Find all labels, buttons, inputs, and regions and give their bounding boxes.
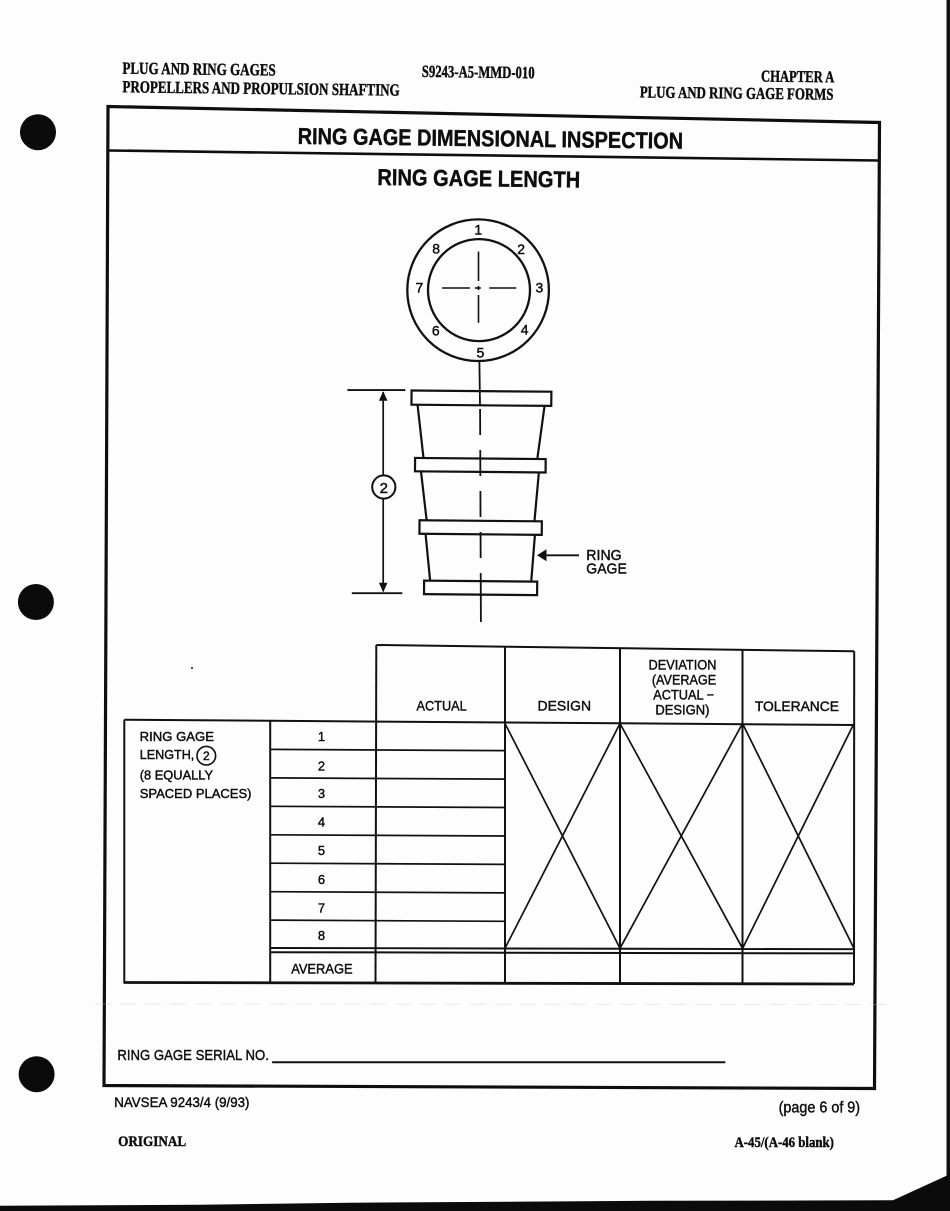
svg-text:TOLERANCE: TOLERANCE [755, 699, 839, 714]
svg-text:AVERAGE: AVERAGE [291, 962, 352, 977]
svg-text:GAGE: GAGE [586, 562, 627, 578]
svg-text:5: 5 [477, 344, 485, 360]
svg-text:RING GAGE DIMENSIONAL INSPECTI: RING GAGE DIMENSIONAL INSPECTION [298, 123, 684, 154]
svg-text:NAVSEA 9243/4 (9/93): NAVSEA 9243/4 (9/93) [114, 1094, 249, 1110]
svg-text:6: 6 [432, 323, 440, 339]
svg-text:DESIGN): DESIGN) [655, 703, 709, 718]
svg-text:7: 7 [318, 901, 325, 916]
svg-text:2: 2 [203, 749, 210, 763]
svg-text:ACTUAL: ACTUAL [417, 698, 467, 713]
svg-text:2: 2 [318, 759, 325, 774]
svg-text:LENGTH,: LENGTH, [140, 747, 195, 762]
svg-text:ACTUAL −: ACTUAL − [653, 688, 714, 703]
svg-text:A-45/(A-46 blank): A-45/(A-46 blank) [735, 1135, 834, 1151]
svg-text:DEVIATION: DEVIATION [649, 658, 717, 673]
svg-text:5: 5 [318, 843, 325, 858]
svg-text:PLUG AND RING GAGE FORMS: PLUG AND RING GAGE FORMS [640, 82, 834, 103]
svg-text:RING GAGE SERIAL NO.: RING GAGE SERIAL NO. [117, 1047, 269, 1064]
svg-text:(8 EQUALLY: (8 EQUALLY [140, 767, 214, 782]
svg-text:(AVERAGE: (AVERAGE [652, 673, 716, 688]
svg-text:PROPELLERS AND PROPULSION SHAF: PROPELLERS AND PROPULSION SHAFTING [122, 77, 400, 99]
svg-text:8: 8 [318, 928, 325, 943]
svg-text:PLUG AND RING GAGES: PLUG AND RING GAGES [122, 59, 276, 80]
svg-text:8: 8 [432, 240, 440, 256]
svg-text:RING GAGE LENGTH: RING GAGE LENGTH [377, 164, 580, 193]
svg-text:3: 3 [318, 786, 325, 801]
svg-text:1: 1 [474, 221, 482, 237]
svg-text:1: 1 [318, 729, 325, 744]
svg-text:2: 2 [517, 241, 525, 257]
svg-text:DESIGN: DESIGN [538, 699, 592, 714]
svg-text:ORIGINAL: ORIGINAL [118, 1134, 186, 1150]
svg-text:S9243-A5-MMD-010: S9243-A5-MMD-010 [422, 62, 535, 82]
svg-text:RING GAGE: RING GAGE [140, 729, 215, 744]
svg-text:6: 6 [318, 872, 325, 887]
svg-text:4: 4 [521, 322, 529, 338]
svg-text:4: 4 [318, 815, 325, 830]
svg-text:(page 6 of 9): (page 6 of 9) [779, 1099, 861, 1116]
svg-text:SPACED PLACES): SPACED PLACES) [140, 786, 252, 801]
svg-text:7: 7 [416, 280, 424, 296]
svg-text:3: 3 [536, 280, 544, 296]
svg-text:2: 2 [380, 480, 388, 497]
